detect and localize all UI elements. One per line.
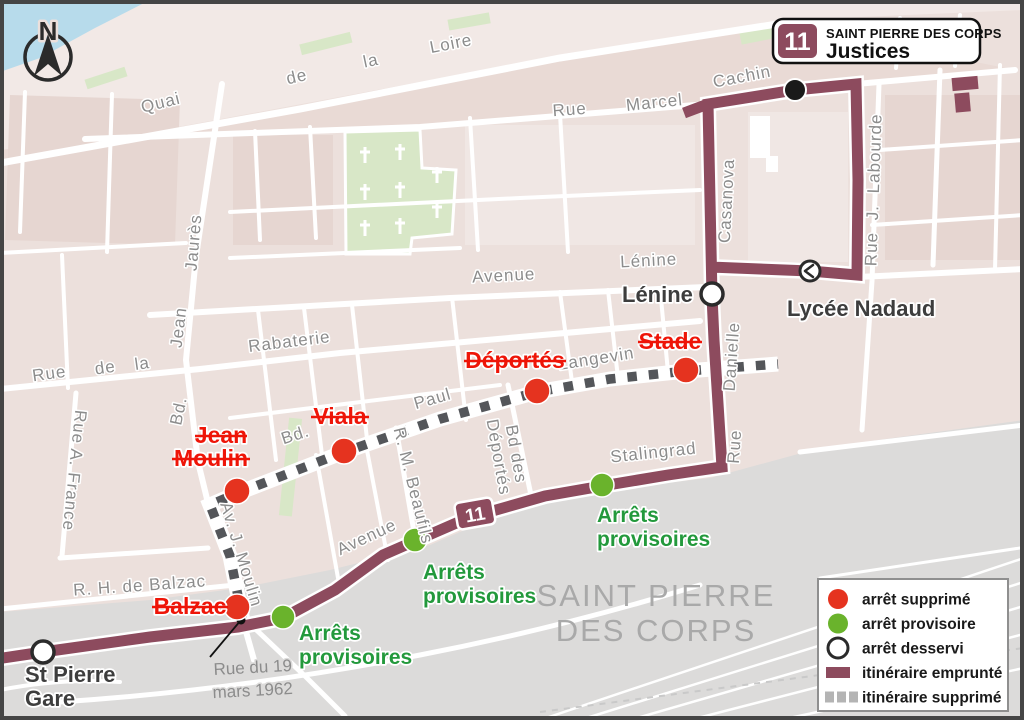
legend-label-served: arrêt desservi — [862, 641, 964, 658]
served-stop-label-lenine: Lénine — [622, 282, 693, 307]
served-stop-dot-st-pierre-gare — [32, 641, 54, 663]
direction-marker-lycee-nadaud — [800, 261, 820, 281]
district-label-line1: SAINT PIERRE — [537, 578, 776, 613]
district-label-line2: DES CORPS — [556, 613, 757, 648]
legend-label-removed-route: itinéraire supprimé — [862, 690, 1002, 707]
temporary-stop-dot-3 — [590, 473, 614, 497]
network-name: SAINT PIERRE DES CORPS — [826, 26, 1002, 41]
temporary-stop-label-1b: provisoires — [299, 646, 412, 669]
transit-detour-map: 11 Quai de la Loire Rue Marcel Cachin Av… — [0, 0, 1024, 720]
legend-label-removed: arrêt supprimé — [862, 592, 971, 609]
destination-name: Justices — [826, 40, 910, 63]
served-stop-label-gare: Gare — [25, 686, 75, 711]
removed-stop-dot-viala — [331, 438, 357, 464]
temporary-stop-label-3a: Arrêts — [597, 504, 659, 527]
street-label-rue-de-la-1: de — [94, 357, 117, 379]
line-number: 11 — [784, 28, 811, 56]
served-stop-label-lycee-nadaud: Lycée Nadaud — [787, 296, 935, 321]
street-label-rue-danielle: Rue — [724, 429, 745, 464]
legend-removed-stop-icon — [828, 589, 848, 609]
temporary-stop-dot-1 — [271, 605, 295, 629]
route-line-badge: 11 — [454, 497, 496, 530]
legend-served-stop-icon — [828, 638, 848, 658]
legend-label-route: itinéraire emprunté — [862, 665, 1003, 682]
removed-stop-dot-stade — [673, 357, 699, 383]
legend-label-temporary: arrêt provisoire — [862, 616, 976, 633]
street-label-lenine-street: Lénine — [620, 250, 678, 272]
legend-dashed-line-icon — [825, 692, 858, 703]
temporary-stop-label-1a: Arrêts — [299, 622, 361, 645]
district-label: SAINT PIERRE DES CORPS — [537, 578, 776, 648]
removed-stop-dot-deportes — [524, 378, 550, 404]
street-label-avenue: Avenue — [472, 264, 536, 286]
legend-temporary-stop-icon — [828, 614, 848, 634]
header-badge: 11 SAINT PIERRE DES CORPS Justices — [773, 19, 1002, 63]
removed-stop-dot-jean-moulin — [224, 478, 250, 504]
street-label-rue-marcel: Rue — [552, 99, 587, 120]
street-label-rue-de-la-2: la — [133, 353, 151, 374]
temporary-stop-label-3b: provisoires — [597, 528, 710, 551]
served-stop-label-st-pierre: St Pierre — [25, 662, 116, 687]
legend-route-line-icon — [826, 667, 850, 678]
temporary-stop-label-2b: provisoires — [423, 585, 536, 608]
served-stop-dot-lenine — [701, 283, 723, 305]
legend: arrêt supprimé arrêt provisoire arrêt de… — [818, 579, 1008, 711]
terminus-dot-justices — [784, 79, 806, 101]
route-line-badge-number: 11 — [464, 503, 488, 527]
temporary-stop-label-2a: Arrêts — [423, 561, 485, 584]
